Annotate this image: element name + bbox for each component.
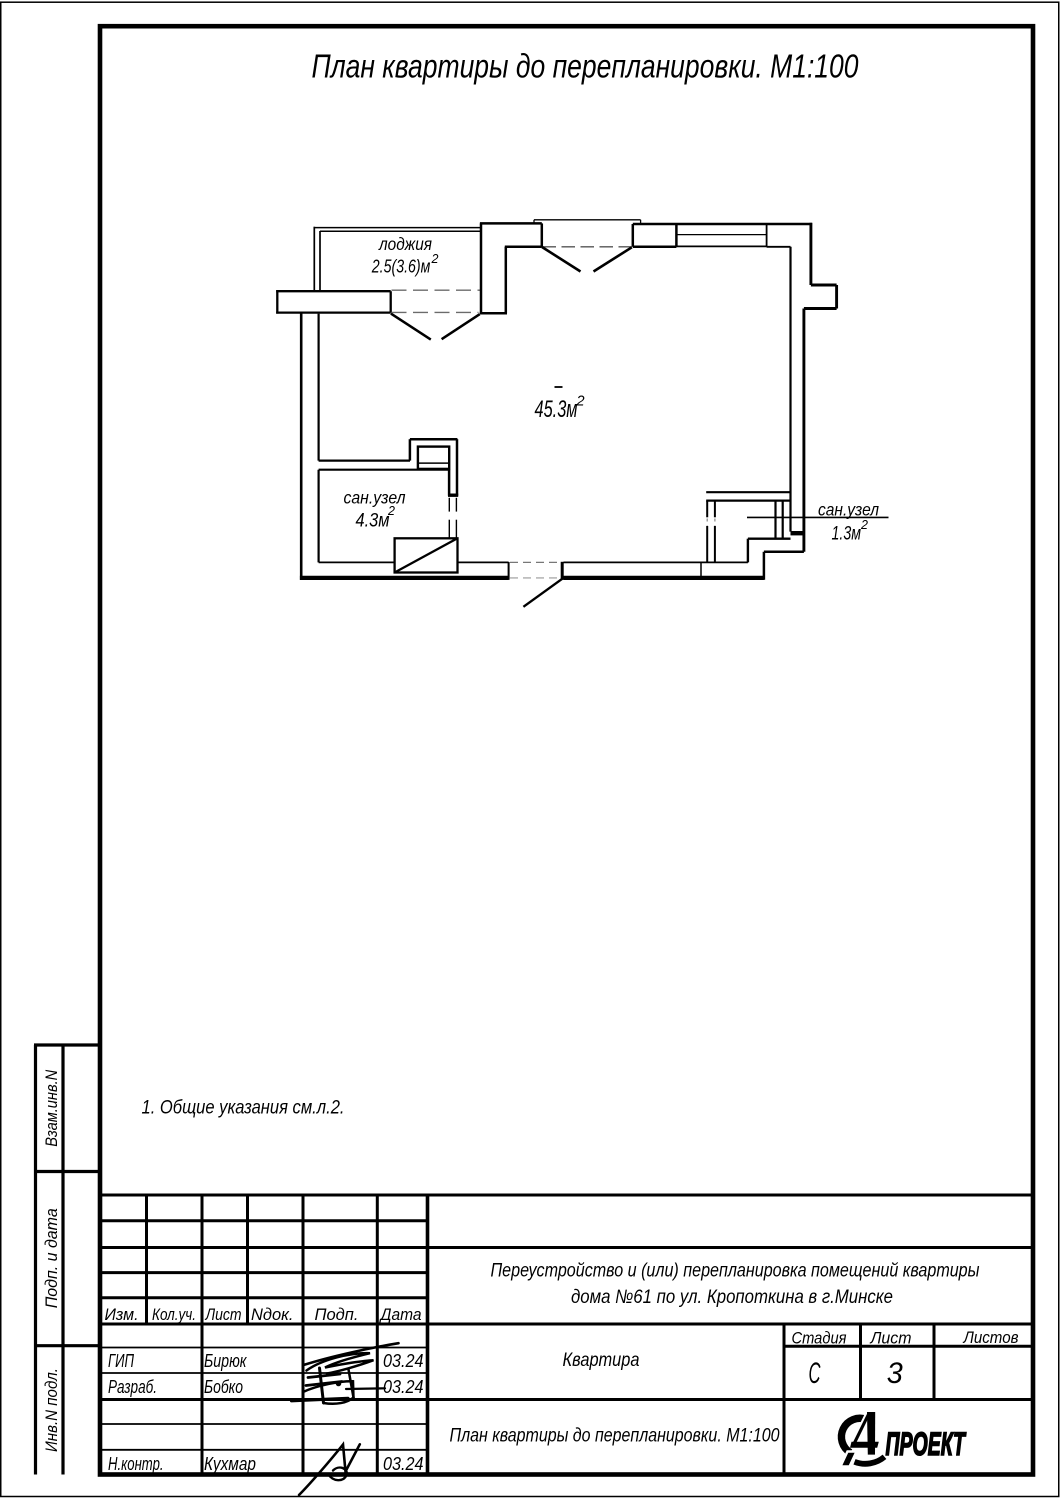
svg-text:ГИП: ГИП <box>108 1351 135 1371</box>
svg-text:План квартиры до перепланировк: План квартиры до перепланировки. М1:100 <box>450 1425 780 1447</box>
svg-text:2: 2 <box>431 252 439 266</box>
svg-text:Разраб.: Разраб. <box>108 1377 157 1397</box>
svg-text:4.3м: 4.3м <box>356 510 390 532</box>
svg-text:Взам.инв.N: Взам.инв.N <box>43 1070 61 1147</box>
svg-text:Подп. и дата: Подп. и дата <box>43 1208 61 1308</box>
svg-text:45.3м: 45.3м <box>535 396 578 423</box>
svg-text:2: 2 <box>860 518 868 532</box>
svg-text:03.24: 03.24 <box>383 1351 424 1371</box>
svg-text:сан.узел: сан.узел <box>818 500 879 520</box>
svg-text:Инв.N подл.: Инв.N подл. <box>43 1368 61 1452</box>
svg-text:03.24: 03.24 <box>383 1377 424 1397</box>
svg-text:3: 3 <box>887 1357 903 1390</box>
svg-text:План квартиры до перепланировк: План квартиры до перепланировки. М1:100 <box>312 47 860 84</box>
svg-text:Дата: Дата <box>379 1306 422 1324</box>
svg-text:1.3м: 1.3м <box>832 523 862 545</box>
svg-text:дома №61 по ул. Кропоткина в г: дома №61 по ул. Кропоткина в г.Минске <box>571 1286 893 1308</box>
svg-text:03.24: 03.24 <box>383 1454 424 1474</box>
svg-text:Nдок.: Nдок. <box>251 1306 294 1324</box>
svg-text:Подп.: Подп. <box>315 1306 359 1324</box>
svg-text:Лист: Лист <box>870 1330 912 1348</box>
svg-text:лоджия: лоджия <box>378 234 432 254</box>
svg-text:2: 2 <box>576 394 585 410</box>
svg-text:Бирюк: Бирюк <box>204 1351 248 1371</box>
svg-text:Бобко: Бобко <box>204 1377 243 1397</box>
svg-text:1. Общие указания см.л.2.: 1. Общие указания см.л.2. <box>142 1098 345 1119</box>
svg-text:Лист: Лист <box>205 1306 242 1324</box>
svg-text:сан.узел: сан.узел <box>344 488 406 508</box>
svg-text:ПРОЕКТ: ПРОЕКТ <box>886 1427 967 1463</box>
svg-text:2: 2 <box>387 504 395 518</box>
svg-text:С: С <box>809 1357 821 1390</box>
svg-text:Кол.уч.: Кол.уч. <box>152 1306 196 1324</box>
svg-text:Изм.: Изм. <box>105 1306 139 1324</box>
svg-text:Стадия: Стадия <box>792 1330 847 1348</box>
svg-text:2.5(3.6)м: 2.5(3.6)м <box>371 257 430 277</box>
svg-text:Н.контр.: Н.контр. <box>108 1454 164 1474</box>
svg-text:Переустройство и (или) перепла: Переустройство и (или) перепланировка по… <box>491 1260 980 1282</box>
svg-text:Кухмар: Кухмар <box>204 1454 256 1474</box>
svg-text:Квартира: Квартира <box>563 1349 640 1371</box>
svg-text:Листов: Листов <box>963 1329 1019 1347</box>
